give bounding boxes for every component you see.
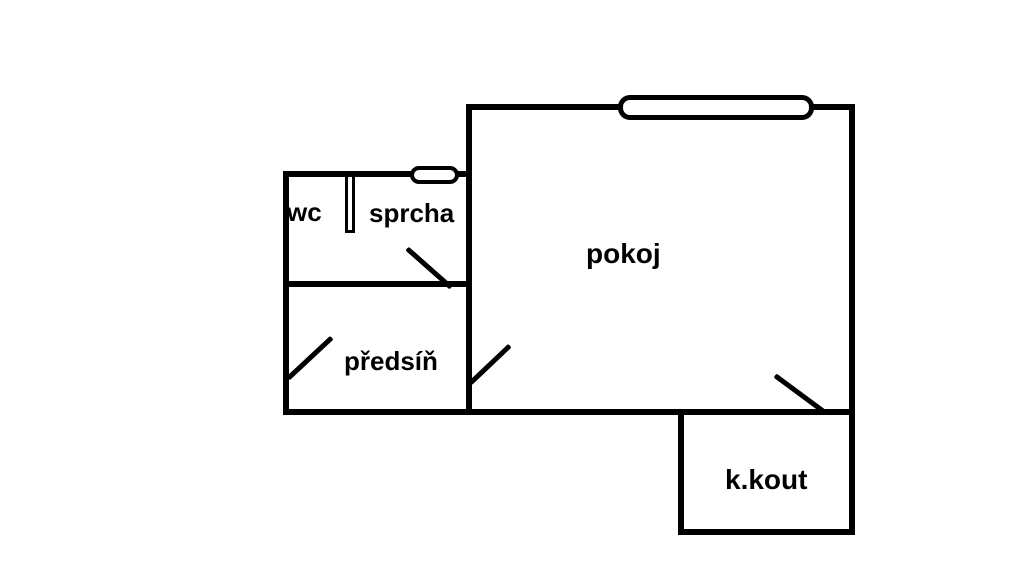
room-label-kkout: k.kout	[725, 464, 807, 496]
floor-plan: wc sprcha pokoj předsíň k.kout	[0, 0, 1024, 576]
wall-kkout-bottom	[678, 529, 855, 535]
pokoj-predsin-door-swing	[468, 344, 511, 385]
wall-right	[849, 104, 855, 535]
room-label-pokoj: pokoj	[586, 238, 661, 270]
wall-pokoj-left	[466, 104, 472, 415]
room-label-wc: wc	[287, 197, 322, 228]
room-label-sprcha: sprcha	[369, 198, 454, 229]
room-label-predsin: předsíň	[344, 346, 438, 377]
predsin-entry-door-swing	[286, 336, 333, 381]
pokoj-top-window	[618, 95, 814, 120]
wc-sprcha-partition	[345, 174, 355, 233]
sprcha-top-window	[410, 166, 459, 184]
wall-kkout-left	[678, 409, 684, 535]
wall-bottom	[283, 409, 855, 415]
